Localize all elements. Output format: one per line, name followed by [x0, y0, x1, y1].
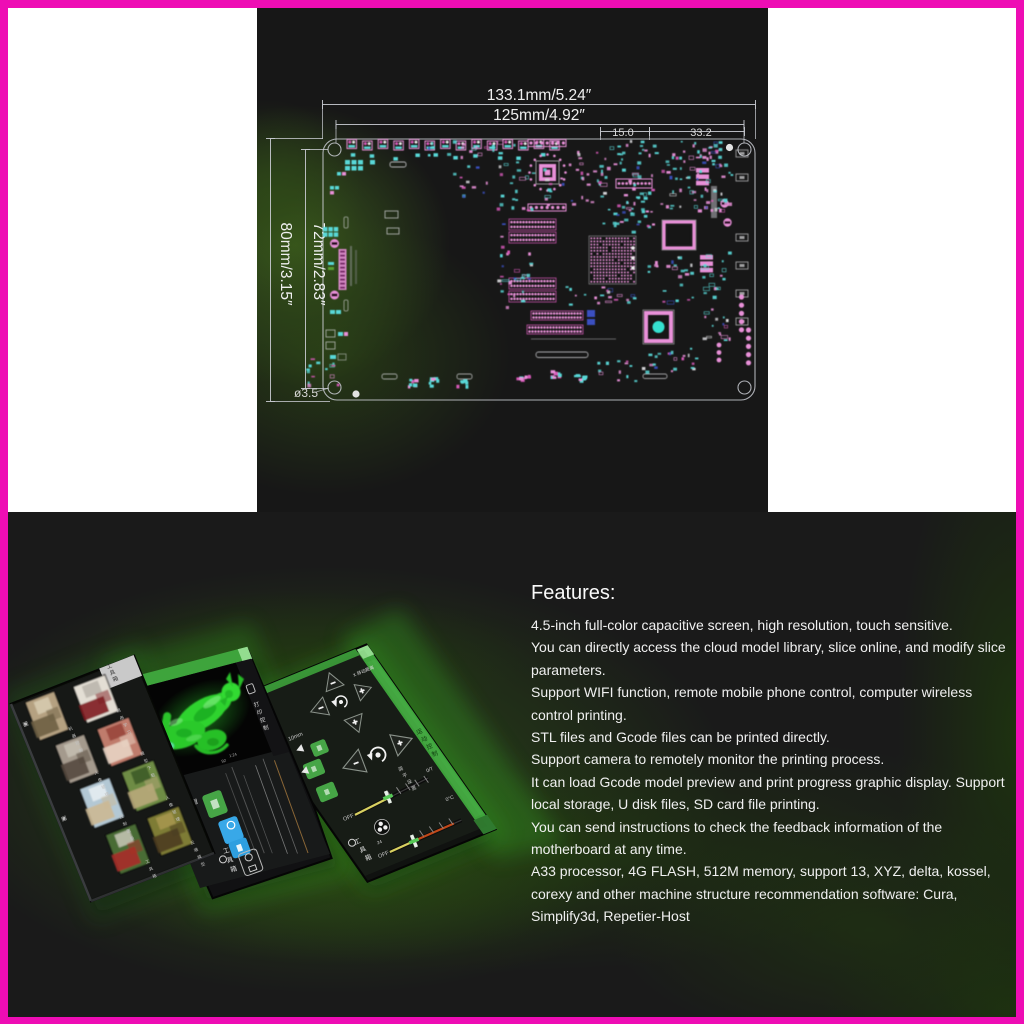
svg-text:33.2: 33.2 — [690, 127, 711, 139]
svg-text:ø3.5: ø3.5 — [294, 386, 318, 400]
svg-text:125mm/4.92″: 125mm/4.92″ — [493, 107, 585, 124]
svg-text:133.1mm/5.24″: 133.1mm/5.24″ — [487, 87, 592, 104]
svg-text:80mm/3.15″: 80mm/3.15″ — [277, 222, 294, 306]
svg-text:15.0: 15.0 — [612, 127, 633, 139]
